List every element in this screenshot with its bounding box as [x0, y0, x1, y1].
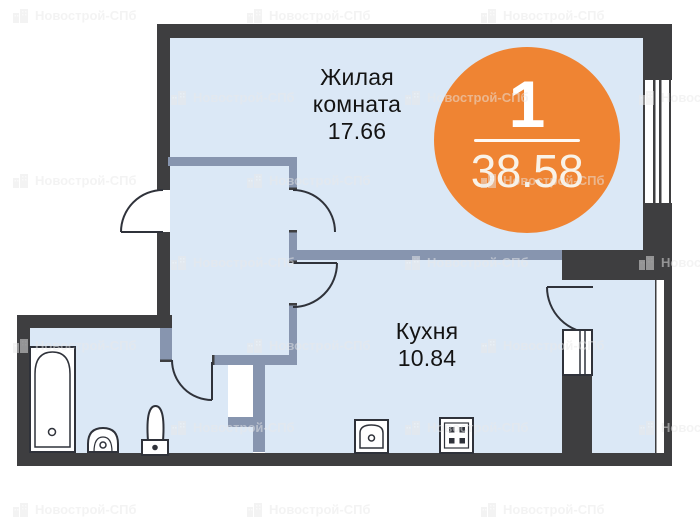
- wall-right-lower: [664, 280, 672, 466]
- stove-icon: [440, 418, 473, 453]
- wall-top: [157, 24, 672, 38]
- wall-bottom: [17, 453, 672, 466]
- wall-right-upper: [643, 38, 672, 80]
- wall-niche: [228, 365, 253, 417]
- cabinet-icon: [563, 330, 592, 375]
- wall-left-lower: [17, 315, 30, 466]
- pedestal-sink-icon: [88, 428, 118, 452]
- balcony-window-icon: [655, 280, 664, 453]
- bathtub-icon: [30, 347, 75, 452]
- apartment-badge: 1 38.58: [434, 47, 620, 233]
- kitchen-sink-icon: [355, 420, 388, 453]
- room-label-kitchen: Кухня 10.84: [347, 318, 507, 372]
- partition-niche-right: [253, 365, 265, 452]
- vent-shaft: [562, 375, 592, 453]
- partition-bath-stub: [160, 328, 172, 362]
- room-count: 1: [509, 73, 546, 135]
- window-icon: [643, 80, 672, 203]
- kitchen-area: 10.84: [398, 345, 457, 371]
- room-label-living: Жилая комната 17.66: [277, 64, 437, 145]
- living-room-area: 17.66: [328, 118, 387, 144]
- partition-stub-1: [289, 166, 297, 190]
- entrance-door: [121, 190, 163, 232]
- partition-stub-2: [289, 230, 297, 263]
- partition-hall-south: [212, 355, 297, 365]
- wall-right-band: [562, 250, 672, 280]
- wall-bath-top: [17, 315, 172, 328]
- total-area: 38.58: [471, 149, 584, 193]
- wall-left-middle: [157, 232, 170, 328]
- living-room-name: Жилая комната: [278, 64, 436, 118]
- partition-niche-bottom: [228, 417, 253, 427]
- kitchen-name: Кухня: [347, 318, 507, 345]
- partition-living-kitchen: [297, 250, 562, 260]
- badge-divider: [474, 139, 580, 142]
- floorplan-image: Жилая комната 17.66 Кухня 10.84 1 38.58 …: [0, 0, 700, 525]
- partition-hall-top: [168, 157, 297, 166]
